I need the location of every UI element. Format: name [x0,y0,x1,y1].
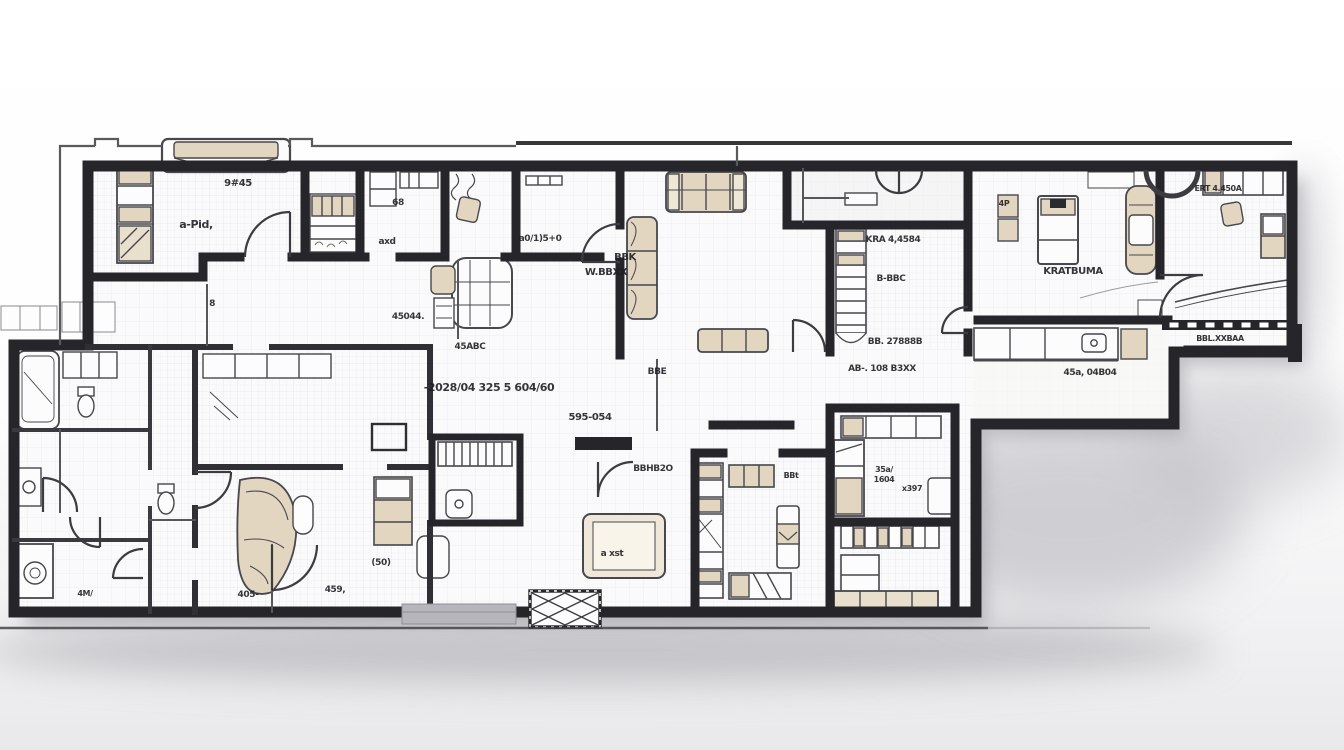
entry-threshold [402,604,516,624]
sofa-icon [627,217,657,319]
console-icon [845,193,877,205]
label-bedroom2: KRATBUMA [1043,266,1103,277]
wall-stub [575,437,632,450]
label-dining-b: 45ABC [455,342,487,352]
label-wing-top: ERT 4.450A [1194,184,1242,193]
doormat-icon [530,591,600,627]
label-bedroom2-door: 4P [999,199,1010,208]
wardrobe-icon [1261,214,1285,258]
bed-icon [834,440,864,516]
bench-icon [729,465,774,487]
bathtub-icon [17,351,59,429]
label-stair-a: KRA 4,4584 [866,235,921,245]
bedroom1-wardrobe-icon [117,167,153,263]
dining-table-icon [431,258,512,328]
label-kitchen: 45a, 04B04 [1063,368,1116,378]
bed-icon [777,506,799,568]
label-closet-room: a0/1)5+0 [519,234,562,244]
label-wing-bottom: BBL.XXBAA [1196,334,1245,343]
chaise-icon [1126,186,1156,274]
label-bedroom3: BBt [784,471,799,480]
label-pantry-b: 459, [325,585,346,595]
desk-icon [841,555,879,595]
washer-icon [17,544,53,598]
label-hall-b: 595-054 [568,412,612,423]
balcony-shelf-icon [1,302,115,332]
bed-icon [1038,196,1078,264]
floor-plan-drawing: 9#45a-Pid,868axda0/1)5+045044.45ABCBBKW.… [0,0,1344,750]
ground-shadow [0,616,1220,684]
label-living-a: BBK [614,252,637,263]
label-kidsroom-a: 35a/ [875,465,893,474]
label-hall-c: BBE [648,367,667,377]
label-stair-b: B-BBC [877,274,907,284]
sink-icon [17,468,41,506]
label-tv-unit: a xst [601,549,625,559]
floor-plan-page: 9#45a-Pid,868axda0/1)5+045044.45ABCBBKW.… [0,0,1344,750]
crib-icon [310,194,356,252]
shelf-row-icon [841,416,941,438]
label-bedroom1-name: a-Pid, [179,218,213,231]
label-study-dim: 68 [392,198,404,208]
shelf-icon [526,176,562,185]
label-corridor: AB-. 108 B3XX [848,364,916,374]
label-living-b: W.BBXX [585,267,628,278]
toilet-icon [78,387,94,417]
sofa-icon [698,329,768,352]
label-kidsroom-c: x397 [902,484,922,493]
label-wc-door: BBHB2O [633,464,673,474]
label-stair-c: BB. 27888B [868,337,923,347]
bed-icon [729,573,791,599]
toilet-icon [158,484,174,514]
label-dining-a: 45044. [392,312,424,322]
label-kidsroom-b: 1604 [874,475,895,484]
sink-icon [446,490,472,518]
bedroom3-wardrobe-icon [696,463,723,598]
label-bedroom1-dim: 9#45 [224,178,252,189]
wardrobe-strip-icon [841,526,939,548]
shelf-icon [63,352,117,378]
label-pantry-a: (50) [371,558,390,568]
tv-unit-icon [583,514,665,578]
sofa-icon [666,172,746,212]
wall-tip [1288,324,1302,362]
label-left-wing: 4M/ [77,589,93,598]
label-pantry-c: 405- [238,590,260,600]
label-small-wc: 8 [209,299,215,309]
label-hall-main: -2028/04 325 5 604/60 [424,381,555,394]
staircase-icon [836,229,866,343]
cabinet-icon [374,477,412,545]
label-study-name: axd [378,237,395,247]
table-icon [928,478,954,514]
radiator-icon [438,442,512,466]
